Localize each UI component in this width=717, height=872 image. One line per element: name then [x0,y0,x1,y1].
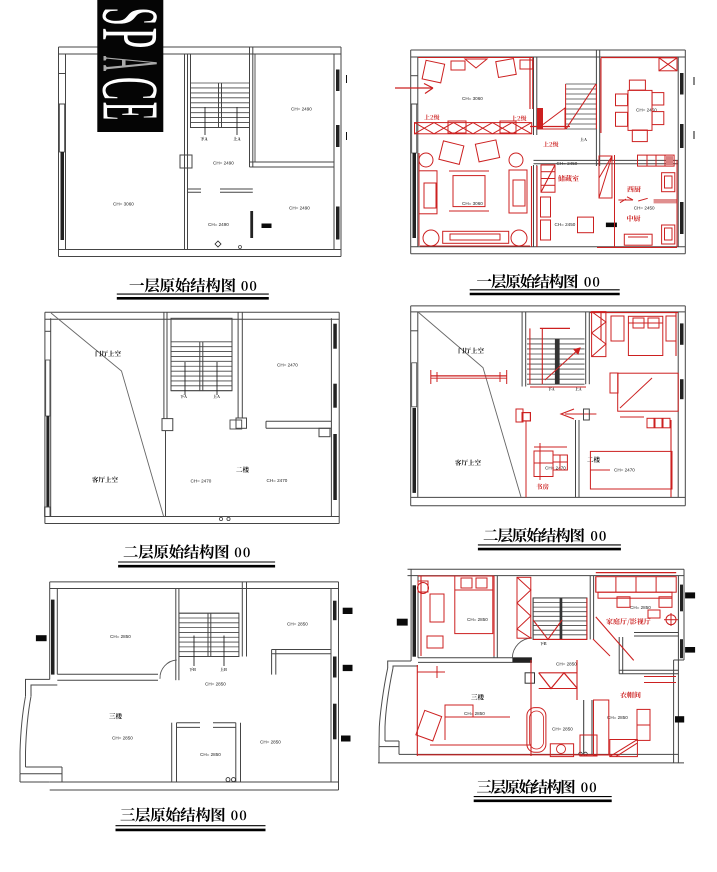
svg-text:CH= 2470: CH= 2470 [614,468,635,473]
svg-text:CH= 2490: CH= 2490 [291,107,312,112]
svg-text:CH= 2450: CH= 2450 [634,206,655,211]
svg-text:CH= 2470: CH= 2470 [267,478,288,483]
svg-text:S: S [85,7,174,26]
svg-text:CH= 2850: CH= 2850 [556,662,577,667]
svg-text:P: P [86,28,176,49]
svg-text:CH= 2450: CH= 2450 [557,161,578,166]
svg-text:CH= 2850: CH= 2850 [260,739,281,744]
svg-text:CH= 3060: CH= 3060 [462,201,483,206]
svg-text:CH= 2850: CH= 2850 [112,736,133,741]
svg-text:CH= 2850: CH= 2850 [110,634,131,639]
svg-text:CH= 2450: CH= 2450 [555,222,576,227]
svg-text:CH= 3060: CH= 3060 [113,202,134,207]
svg-text:A: A [86,56,175,71]
svg-text:CH= 2850: CH= 2850 [607,715,628,720]
svg-text:CH= 2490: CH= 2490 [213,161,234,166]
svg-text:CH= 2470: CH= 2470 [277,363,298,368]
svg-text:CH= 2470: CH= 2470 [191,479,212,484]
svg-text:CH= 2850: CH= 2850 [464,711,485,716]
svg-text:CH= 2850: CH= 2850 [205,682,226,687]
svg-text:CH= 2490: CH= 2490 [208,222,229,227]
svg-text:CH= 2850: CH= 2850 [287,621,308,626]
svg-text:CH= 2850: CH= 2850 [200,752,221,757]
svg-text:E: E [85,102,174,121]
svg-text:CH= 2850: CH= 2850 [467,617,488,622]
svg-text:CH= 3060: CH= 3060 [462,96,483,101]
svg-text:CH= 2850: CH= 2850 [630,605,651,610]
svg-text:CH= 2850: CH= 2850 [552,727,573,732]
svg-text:CH= 2490: CH= 2490 [289,206,310,211]
svg-text:C: C [85,77,173,100]
